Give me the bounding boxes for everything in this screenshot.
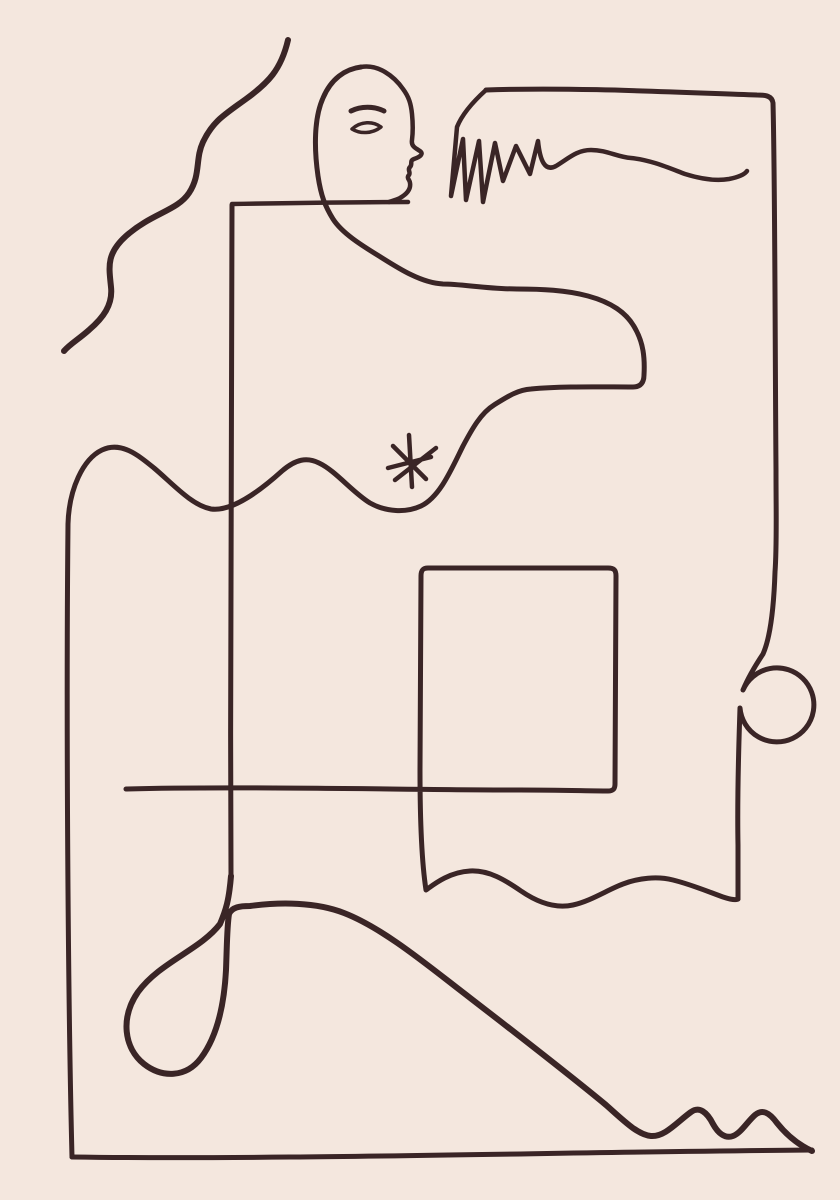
hand-fingers-line [451, 90, 747, 202]
torso-vertical-line [231, 205, 232, 876]
face-profile-line [361, 67, 422, 202]
bottom-loop-and-slope-line [127, 876, 812, 1151]
top-frame-and-right-loop-line [486, 89, 814, 899]
asterisk-star [388, 435, 436, 487]
under-chin-line [232, 202, 408, 204]
baseline [72, 1150, 812, 1158]
eyebrow-line [351, 107, 384, 111]
eye-outline [352, 123, 381, 133]
rectangle-line [126, 568, 738, 906]
hair-wave-line [64, 40, 288, 351]
line-art-canvas [0, 0, 840, 1200]
abstract-line-art-poster [0, 0, 840, 1200]
figure-contour-line [67, 67, 644, 1157]
